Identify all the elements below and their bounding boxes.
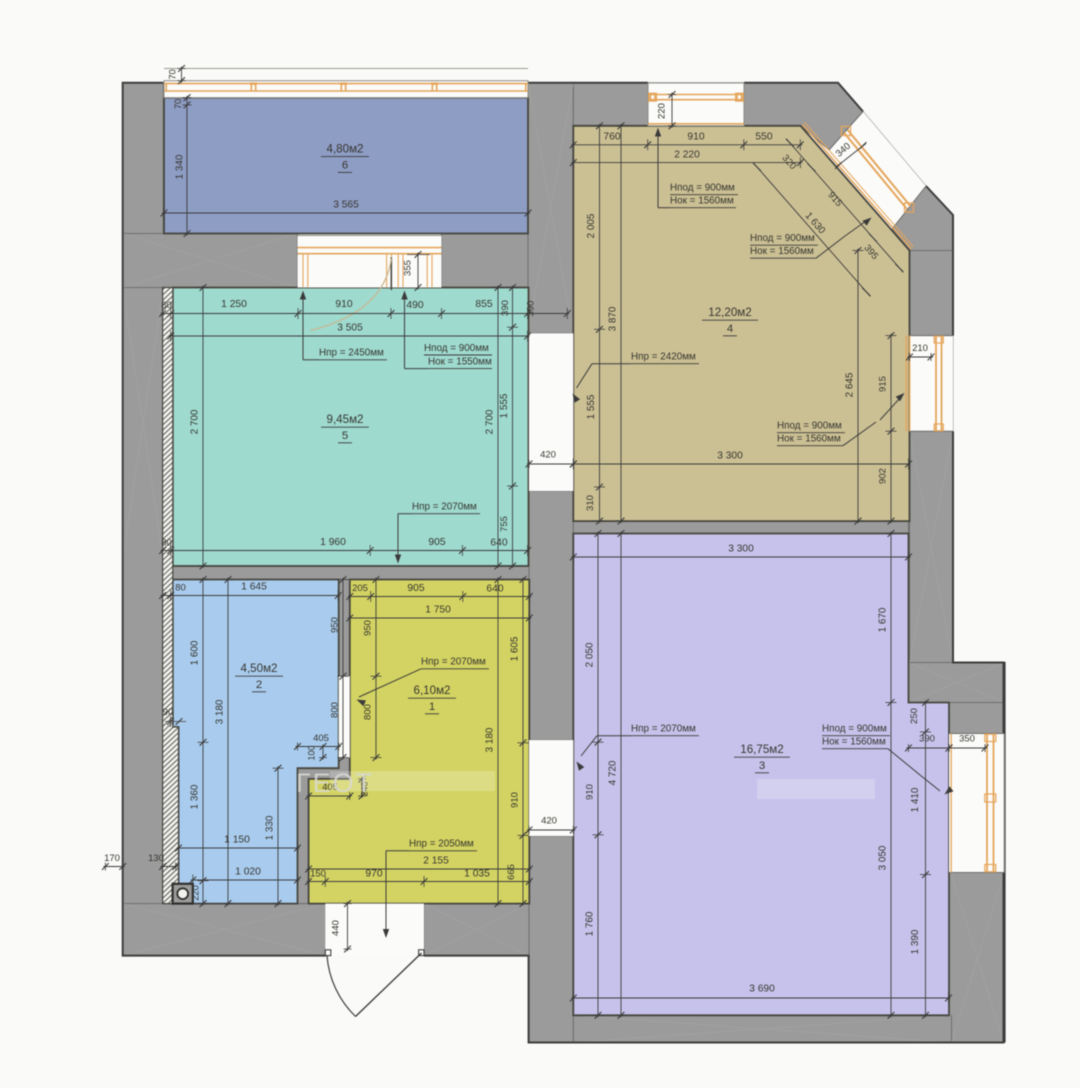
svg-text:1 555: 1 555 [586,394,597,419]
svg-text:3 565: 3 565 [333,200,359,211]
svg-text:Нпр = 2070мм: Нпр = 2070мм [631,724,696,735]
svg-text:350: 350 [959,734,975,745]
svg-text:80: 80 [161,538,172,549]
svg-text:1 340: 1 340 [175,154,186,179]
svg-text:800: 800 [330,702,341,718]
svg-text:5: 5 [342,430,348,442]
svg-text:1 760: 1 760 [585,911,596,936]
svg-text:910: 910 [335,299,352,310]
svg-text:250: 250 [909,708,920,724]
svg-text:4,50м2: 4,50м2 [241,662,278,675]
svg-text:4 720: 4 720 [608,760,619,785]
svg-text:70: 70 [173,99,183,109]
svg-text:2 155: 2 155 [423,856,449,867]
svg-text:760: 760 [603,132,620,143]
svg-text:Нпод = 900мм: Нпод = 900мм [750,233,815,244]
svg-text:855: 855 [475,299,492,310]
svg-text:220: 220 [657,103,668,119]
svg-text:6,10м2: 6,10м2 [414,684,451,697]
svg-text:1 390: 1 390 [910,929,921,954]
svg-text:1 670: 1 670 [878,607,889,632]
svg-text:420: 420 [540,450,556,461]
svg-text:1 605: 1 605 [510,636,521,661]
svg-text:970: 970 [365,869,382,880]
svg-text:1 020: 1 020 [235,867,261,878]
svg-text:902: 902 [878,468,889,484]
svg-text:150: 150 [310,869,326,880]
svg-text:1 960: 1 960 [320,537,346,548]
svg-text:Нпр = 2420мм: Нпр = 2420мм [631,352,696,363]
svg-text:Нпр = 2070мм: Нпр = 2070мм [412,502,477,513]
svg-text:950: 950 [363,620,374,636]
svg-text:1 035: 1 035 [464,869,490,880]
svg-text:210: 210 [912,343,928,354]
svg-text:1 360: 1 360 [190,784,201,809]
svg-text:1 250: 1 250 [221,299,247,310]
svg-text:170: 170 [104,853,120,864]
svg-text:Нпод = 900мм: Нпод = 900мм [670,183,735,194]
svg-text:2: 2 [256,679,262,691]
svg-text:80: 80 [175,583,186,594]
svg-text:2 005: 2 005 [586,213,597,238]
svg-text:80: 80 [161,300,172,311]
svg-text:3 300: 3 300 [728,544,754,555]
svg-text:1 600: 1 600 [190,640,201,665]
svg-text:3 180: 3 180 [215,699,226,724]
svg-text:4,80м2: 4,80м2 [327,143,364,156]
svg-text:405: 405 [313,733,329,744]
svg-text:440: 440 [331,920,342,936]
svg-text:2 050: 2 050 [585,642,596,667]
svg-text:2 700: 2 700 [190,409,201,434]
svg-text:205: 205 [352,583,368,594]
svg-text:Нок = 1560мм: Нок = 1560мм [670,196,734,207]
svg-text:Нпод = 900мм: Нпод = 900мм [777,421,842,432]
svg-text:100: 100 [307,745,317,760]
svg-text:12,20м2: 12,20м2 [708,306,751,319]
svg-text:130: 130 [148,853,164,864]
svg-text:905: 905 [428,537,445,548]
svg-text:910: 910 [687,132,704,143]
svg-text:3 870: 3 870 [608,306,619,331]
svg-text:490: 490 [406,300,423,311]
svg-text:550: 550 [755,132,772,143]
svg-text:3 300: 3 300 [717,451,743,462]
svg-text:390: 390 [500,300,511,316]
svg-text:910: 910 [585,784,596,800]
svg-text:2 220: 2 220 [674,150,700,161]
svg-text:420: 420 [541,816,557,827]
svg-text:1 330: 1 330 [265,815,276,840]
svg-text:Нпод = 900мм: Нпод = 900мм [424,343,489,354]
svg-text:390: 390 [526,301,537,317]
svg-text:Нпр = 2050мм: Нпр = 2050мм [409,839,474,850]
svg-text:1 410: 1 410 [910,787,921,812]
svg-text:3 505: 3 505 [337,323,363,334]
svg-text:70: 70 [168,69,178,79]
svg-text:3 050: 3 050 [878,845,889,870]
svg-text:755: 755 [499,516,510,532]
svg-text:90: 90 [163,707,174,718]
svg-text:1: 1 [429,701,435,713]
svg-text:950: 950 [330,617,341,633]
svg-text:1 555: 1 555 [499,393,510,418]
svg-text:220: 220 [191,885,201,901]
svg-text:1 645: 1 645 [241,582,267,593]
svg-text:1 750: 1 750 [425,605,451,616]
svg-text:910: 910 [510,792,521,808]
svg-text:640: 640 [486,584,503,595]
svg-text:2 645: 2 645 [845,372,856,397]
svg-text:3 690: 3 690 [749,984,775,995]
svg-text:1 150: 1 150 [224,835,250,846]
svg-text:915: 915 [878,376,889,392]
svg-text:800: 800 [363,704,374,720]
svg-text:665: 665 [506,864,517,880]
svg-text:Нок = 1560мм: Нок = 1560мм [750,246,814,257]
svg-text:3: 3 [759,760,765,772]
svg-text:9,45м2: 9,45м2 [327,413,364,426]
svg-text:16,75м2: 16,75м2 [740,743,783,756]
svg-text:3 180: 3 180 [485,727,496,752]
svg-text:Нпр = 2070мм: Нпр = 2070мм [421,657,486,668]
svg-text:2 700: 2 700 [485,409,496,434]
svg-text:Нпр = 2450мм: Нпр = 2450мм [319,348,384,359]
svg-text:390: 390 [919,734,935,745]
svg-text:640: 640 [490,538,507,549]
svg-text:355: 355 [403,260,414,276]
svg-text:Нок = 1550мм: Нок = 1550мм [428,357,492,368]
svg-text:Нок = 1560мм: Нок = 1560мм [777,434,841,445]
svg-text:ГЕОТ: ГЕОТ [296,768,374,798]
svg-text:905: 905 [407,583,424,594]
svg-text:310: 310 [585,495,596,511]
svg-text:Нпод = 900мм: Нпод = 900мм [822,724,887,735]
svg-text:Нок = 1560мм: Нок = 1560мм [822,737,886,748]
svg-text:4: 4 [727,323,733,335]
svg-text:6: 6 [342,160,348,172]
